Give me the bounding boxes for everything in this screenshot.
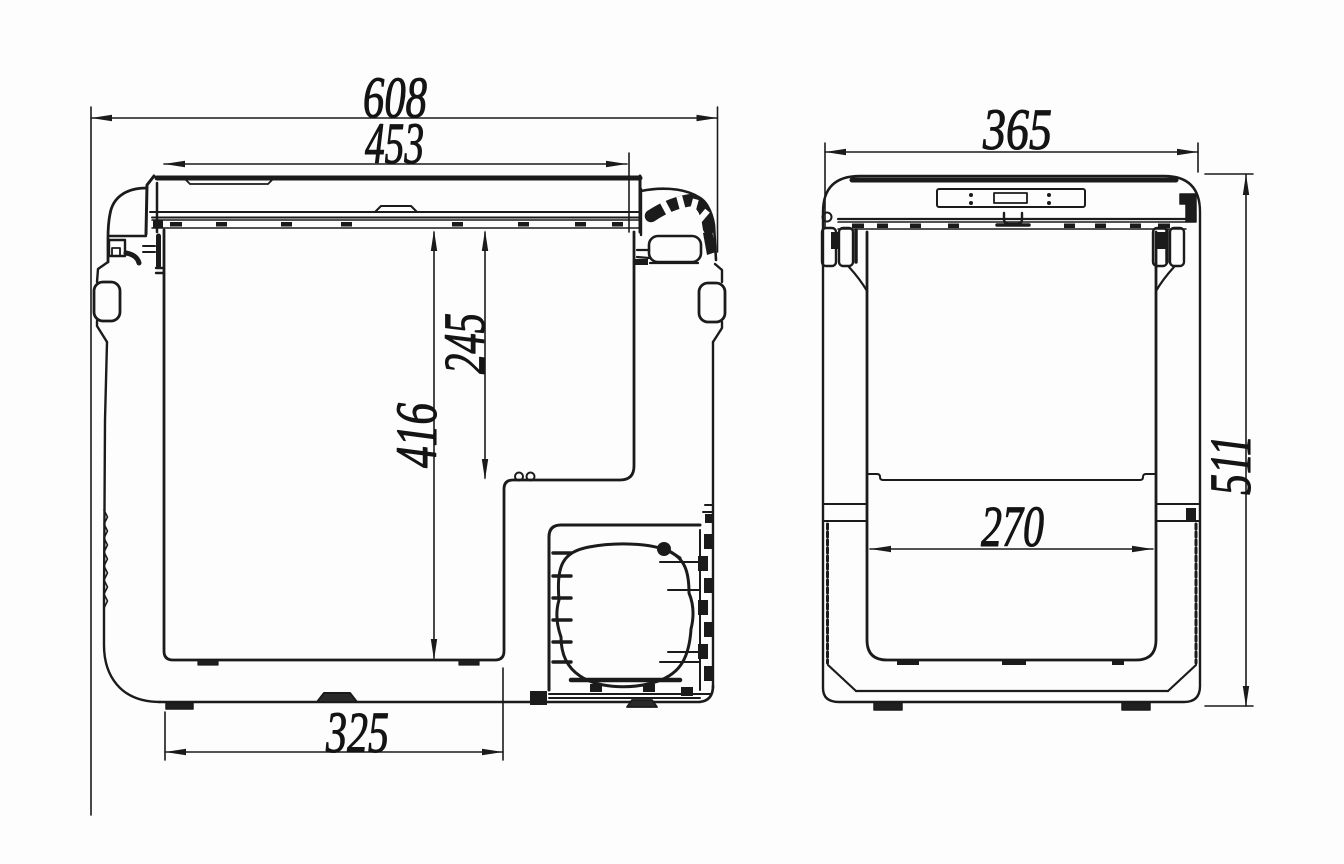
svg-text:416: 416 [384,403,449,468]
svg-text:245: 245 [432,313,497,374]
svg-text:511: 511 [1198,435,1263,495]
svg-text:325: 325 [325,700,389,765]
svg-text:365: 365 [982,97,1052,162]
svg-text:270: 270 [981,494,1044,559]
svg-text:453: 453 [365,111,424,176]
